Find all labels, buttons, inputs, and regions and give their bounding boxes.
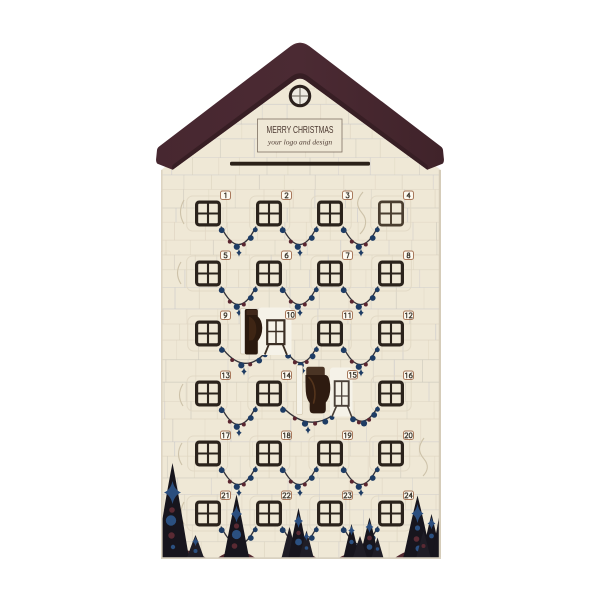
svg-text:your logo and design: your logo and design — [267, 138, 333, 147]
svg-text:MERRY CHRISTMAS: MERRY CHRISTMAS — [267, 124, 334, 136]
